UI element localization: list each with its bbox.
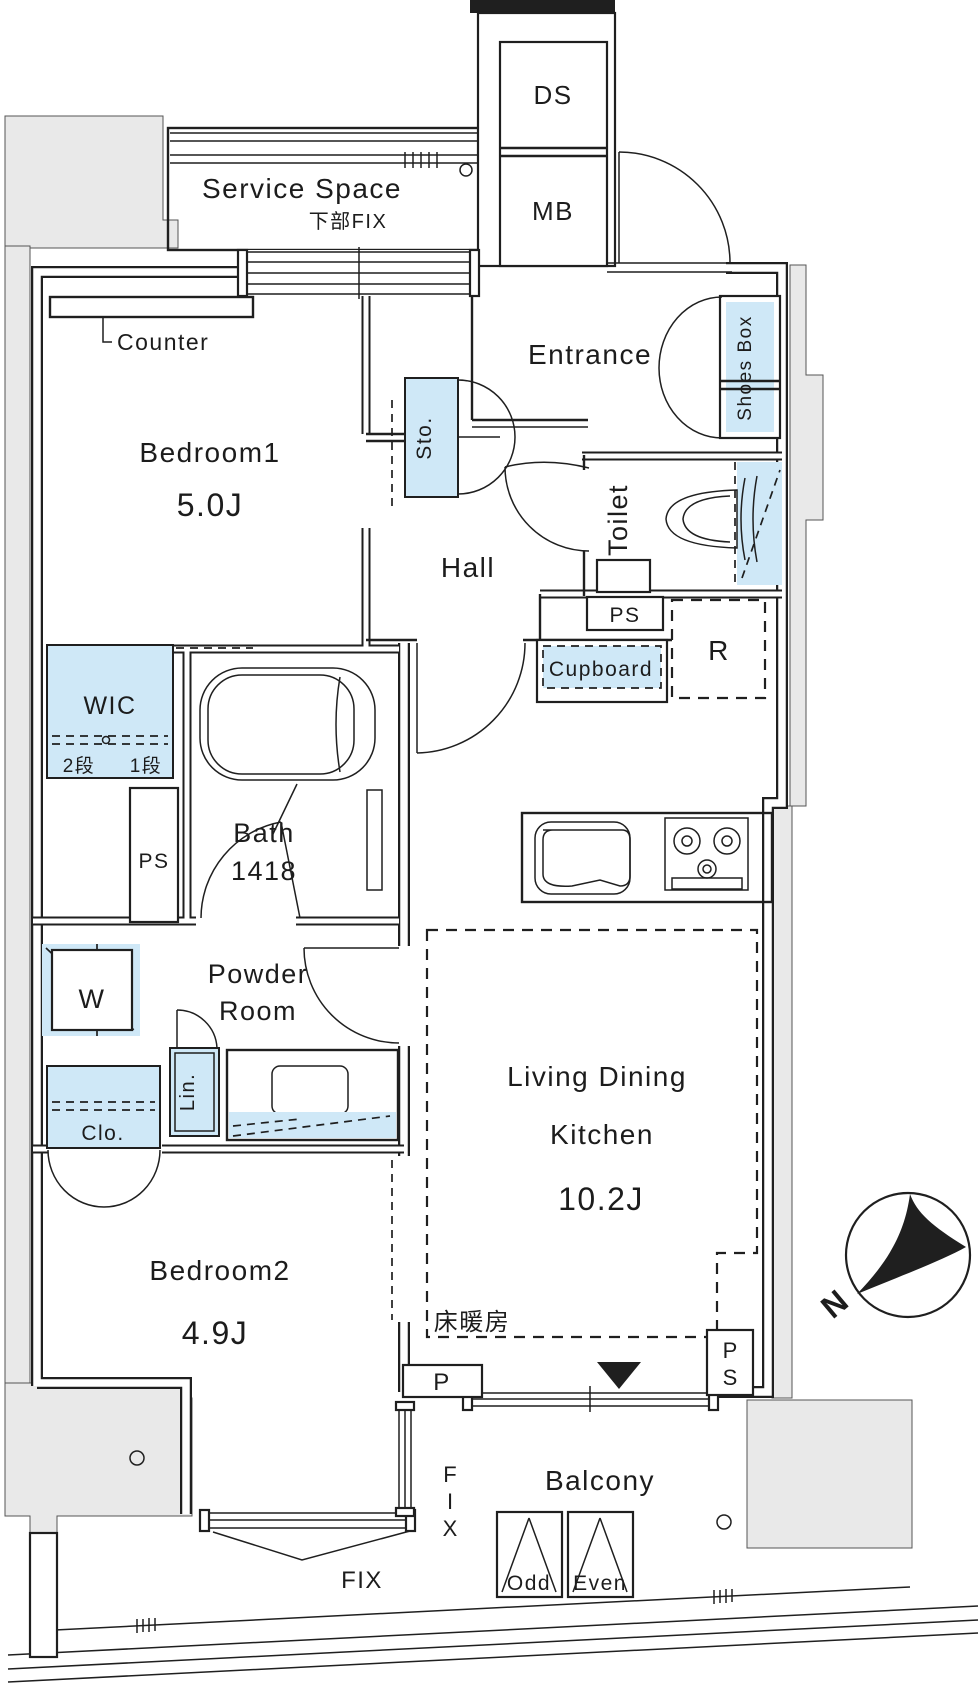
drain-circle-icon	[717, 1515, 731, 1529]
bathtub-icon	[200, 668, 375, 780]
label-hatch-odd: Odd	[507, 1572, 551, 1595]
kitchen-storage-zone: PS Cupboard R	[366, 594, 765, 702]
label-hall: Hall	[441, 552, 495, 583]
label-ds: DS	[533, 80, 572, 110]
label-service-space: Service Space	[202, 173, 402, 204]
balcony-wall-stub	[30, 1533, 57, 1657]
ds-mb-shaft: DS MB	[478, 13, 615, 266]
ldk: 床暖房 Living Dining Kitchen 10.2J P PS	[403, 643, 772, 1397]
storage-closet: Sto.	[405, 378, 515, 497]
label-ps-left: PS	[138, 850, 169, 873]
bedroom1: Counter Bedroom1 5.0J	[50, 297, 404, 648]
toilet-hand-basin	[597, 560, 650, 592]
linen-cabinet: Lin.	[170, 1010, 219, 1136]
label-cupboard: Cupboard	[549, 658, 653, 681]
entrance-door-icon	[619, 152, 730, 263]
compass: N	[814, 1193, 970, 1325]
hook-circle-icon	[460, 164, 472, 176]
window-ldk-balcony	[463, 1362, 718, 1412]
label-service-space-sub: 下部FIX	[309, 210, 388, 233]
label-bath-size: 1418	[231, 856, 297, 886]
label-bedroom1-size: 5.0J	[177, 487, 243, 523]
label-fix: FIX	[341, 1567, 383, 1594]
label-washer: W	[79, 984, 106, 1014]
label-bedroom2: Bedroom2	[149, 1255, 290, 1286]
label-wic-tier2: 2段	[63, 755, 96, 777]
ldk-entry-door-icon	[417, 643, 525, 753]
floor-plan-canvas: Service Space 下部FIX DS MB	[0, 0, 980, 1685]
vanity	[227, 1050, 398, 1140]
closet-doors-icon	[48, 1150, 160, 1207]
label-fix-side: FIX	[438, 1462, 463, 1543]
toilet-cabinet	[737, 462, 782, 585]
washer-space: W	[42, 944, 140, 1036]
label-mb: MB	[532, 196, 574, 226]
label-ldk-size: 10.2J	[558, 1181, 644, 1217]
storage-doors-icon	[458, 380, 515, 494]
label-refrigerator: R	[708, 635, 730, 666]
powder-room-door-icon	[304, 948, 399, 1043]
shoes-box: Shoes Box	[659, 296, 780, 438]
label-wic-tier1: 1段	[130, 755, 163, 777]
label-powder-line1: Powder	[208, 959, 309, 989]
label-floor-heating: 床暖房	[434, 1309, 511, 1336]
label-entrance: Entrance	[528, 339, 652, 370]
counter-top	[50, 297, 253, 317]
label-shoes-box: Shoes Box	[735, 315, 756, 420]
top-wall-bar	[470, 0, 615, 13]
label-counter: Counter	[117, 329, 209, 355]
toilet-door-icon	[505, 462, 589, 551]
label-ldk-line1: Living Dining	[507, 1061, 687, 1092]
balcony-railing	[8, 1533, 978, 1682]
label-hatch-even: Even	[573, 1572, 627, 1595]
label-p: P	[433, 1369, 451, 1396]
linen-door-icon	[177, 1010, 217, 1048]
label-toilet: Toilet	[603, 484, 633, 556]
toilet-room: Toilet	[505, 455, 782, 596]
label-powder-line2: Room	[219, 996, 297, 1026]
label-bedroom1: Bedroom1	[139, 437, 280, 468]
label-north: N	[814, 1282, 856, 1325]
stove-icon	[665, 818, 748, 890]
label-ldk-line2: Kitchen	[550, 1119, 654, 1150]
entry-direction-triangle-icon	[597, 1362, 641, 1389]
evacuation-hatch-even: Even	[568, 1512, 633, 1597]
wic: WIC 2段 1段	[47, 645, 173, 778]
bath-counter	[367, 790, 382, 890]
window-bedroom2-bottom	[200, 1510, 415, 1560]
label-balcony: Balcony	[545, 1465, 655, 1496]
label-closet: Clo.	[81, 1122, 124, 1145]
window-bedroom2-side-fix	[396, 1402, 414, 1516]
evacuation-hatch-odd: Odd	[497, 1512, 562, 1597]
closet: Clo.	[47, 1066, 160, 1207]
label-ps-center: PS	[609, 604, 640, 627]
label-linen: Lin.	[177, 1073, 199, 1111]
kitchen-counter	[522, 813, 772, 902]
label-storage: Sto.	[413, 416, 436, 459]
label-bedroom2-size: 4.9J	[182, 1315, 248, 1351]
shoes-box-doors-icon	[659, 297, 722, 438]
label-ps-bottom: PS	[718, 1338, 743, 1392]
floor-plan-page: Service Space 下部FIX DS MB	[0, 0, 980, 1685]
label-wic: WIC	[83, 692, 136, 720]
window-bedroom1-top	[238, 247, 479, 299]
